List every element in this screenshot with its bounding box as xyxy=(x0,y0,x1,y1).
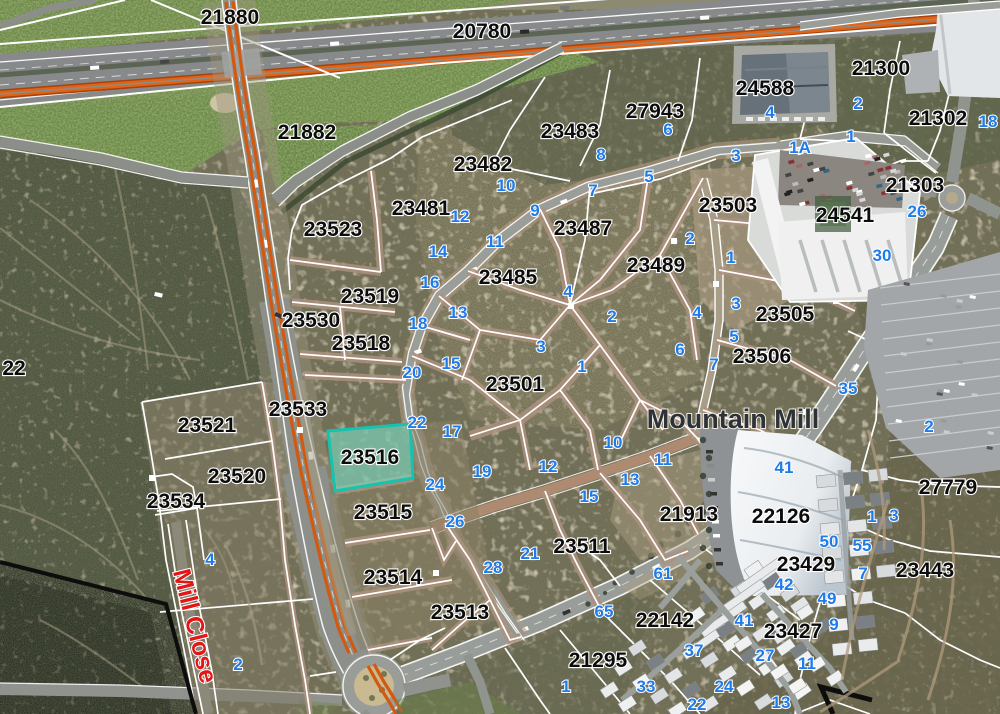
svg-text:4: 4 xyxy=(205,550,215,569)
svg-text:15: 15 xyxy=(442,354,461,373)
svg-text:28: 28 xyxy=(484,558,503,577)
svg-text:24541: 24541 xyxy=(816,204,875,227)
svg-text:21880: 21880 xyxy=(201,6,259,29)
svg-text:23513: 23513 xyxy=(431,601,489,624)
svg-text:23506: 23506 xyxy=(733,345,791,368)
svg-text:19: 19 xyxy=(473,462,492,481)
svg-text:22126: 22126 xyxy=(752,505,810,528)
svg-text:23481: 23481 xyxy=(392,197,451,220)
svg-text:22: 22 xyxy=(408,413,427,432)
svg-text:1: 1 xyxy=(561,677,570,696)
svg-text:23518: 23518 xyxy=(332,332,391,355)
svg-text:23487: 23487 xyxy=(554,217,612,240)
svg-text:12: 12 xyxy=(451,207,470,226)
svg-text:42: 42 xyxy=(775,575,794,594)
svg-text:23521: 23521 xyxy=(178,414,237,437)
svg-text:4: 4 xyxy=(563,282,573,301)
svg-text:23503: 23503 xyxy=(699,194,757,217)
svg-text:27943: 27943 xyxy=(626,100,684,123)
svg-text:16: 16 xyxy=(421,273,440,292)
svg-text:7: 7 xyxy=(709,355,718,374)
svg-text:23427: 23427 xyxy=(764,620,822,643)
svg-text:23443: 23443 xyxy=(896,559,954,582)
svg-text:6: 6 xyxy=(663,120,672,139)
svg-text:23483: 23483 xyxy=(541,120,599,143)
svg-text:3: 3 xyxy=(889,506,898,525)
svg-text:23485: 23485 xyxy=(479,266,538,289)
svg-text:22: 22 xyxy=(688,695,707,714)
svg-text:8: 8 xyxy=(596,145,605,164)
svg-text:23534: 23534 xyxy=(147,490,206,513)
svg-text:20780: 20780 xyxy=(453,20,511,43)
svg-text:4: 4 xyxy=(765,103,775,122)
svg-text:33: 33 xyxy=(637,677,656,696)
svg-text:7: 7 xyxy=(588,181,597,200)
svg-text:22142: 22142 xyxy=(636,609,694,632)
svg-text:2: 2 xyxy=(924,417,933,436)
svg-text:24: 24 xyxy=(715,677,734,696)
svg-text:23511: 23511 xyxy=(553,535,611,558)
svg-text:3: 3 xyxy=(731,294,740,313)
svg-text:18: 18 xyxy=(979,112,998,131)
svg-text:50: 50 xyxy=(820,532,839,551)
svg-text:10: 10 xyxy=(604,433,623,452)
svg-text:Mountain Mill: Mountain Mill xyxy=(647,404,819,434)
svg-text:21913: 21913 xyxy=(660,503,718,526)
svg-text:5: 5 xyxy=(729,327,738,346)
svg-text:2: 2 xyxy=(233,655,242,674)
svg-text:1A: 1A xyxy=(789,138,811,157)
svg-text:21302: 21302 xyxy=(909,107,967,130)
svg-text:5: 5 xyxy=(644,167,653,186)
svg-text:27779: 27779 xyxy=(919,476,977,499)
svg-text:9: 9 xyxy=(530,201,539,220)
svg-text:2: 2 xyxy=(685,229,694,248)
svg-text:41: 41 xyxy=(775,458,794,477)
svg-text:21882: 21882 xyxy=(278,121,336,144)
svg-text:23533: 23533 xyxy=(269,398,327,421)
svg-text:4: 4 xyxy=(692,303,702,322)
svg-text:21303: 21303 xyxy=(886,174,944,197)
svg-text:1: 1 xyxy=(726,248,735,267)
svg-text:22: 22 xyxy=(2,357,25,380)
svg-text:13: 13 xyxy=(772,693,791,712)
svg-text:23489: 23489 xyxy=(627,254,685,277)
svg-text:27: 27 xyxy=(756,646,775,665)
svg-text:30: 30 xyxy=(873,246,892,265)
svg-text:23514: 23514 xyxy=(364,566,423,589)
svg-text:23523: 23523 xyxy=(304,218,362,241)
svg-text:49: 49 xyxy=(818,589,837,608)
svg-text:11: 11 xyxy=(654,450,672,469)
svg-text:20: 20 xyxy=(403,363,422,382)
svg-text:1: 1 xyxy=(867,507,876,526)
svg-text:23515: 23515 xyxy=(354,501,413,524)
svg-text:23519: 23519 xyxy=(341,285,399,308)
svg-text:41: 41 xyxy=(735,611,754,630)
svg-text:61: 61 xyxy=(654,564,673,583)
svg-text:2: 2 xyxy=(853,94,862,113)
svg-text:18: 18 xyxy=(409,314,428,333)
svg-text:3: 3 xyxy=(536,337,545,356)
svg-text:17: 17 xyxy=(443,422,462,441)
svg-text:21300: 21300 xyxy=(852,57,910,80)
svg-text:21295: 21295 xyxy=(569,649,628,672)
svg-text:23482: 23482 xyxy=(454,153,512,176)
svg-text:23505: 23505 xyxy=(756,303,815,326)
svg-text:1: 1 xyxy=(577,357,586,376)
svg-text:10: 10 xyxy=(497,176,516,195)
svg-text:23520: 23520 xyxy=(208,465,266,488)
svg-text:23530: 23530 xyxy=(282,309,340,332)
svg-text:24: 24 xyxy=(426,475,445,494)
svg-text:21: 21 xyxy=(521,544,540,563)
svg-text:65: 65 xyxy=(595,602,614,621)
svg-text:15: 15 xyxy=(580,487,599,506)
svg-text:55: 55 xyxy=(853,536,872,555)
svg-text:13: 13 xyxy=(449,303,468,322)
svg-text:35: 35 xyxy=(839,379,858,398)
svg-text:1: 1 xyxy=(846,127,855,146)
svg-text:6: 6 xyxy=(675,340,684,359)
svg-text:12: 12 xyxy=(539,457,558,476)
svg-text:3: 3 xyxy=(731,146,740,165)
svg-text:11: 11 xyxy=(798,654,816,673)
svg-text:23516: 23516 xyxy=(341,446,399,469)
svg-text:14: 14 xyxy=(429,242,448,261)
svg-text:24588: 24588 xyxy=(736,77,795,100)
svg-text:7: 7 xyxy=(858,564,867,583)
svg-text:37: 37 xyxy=(685,641,704,660)
svg-text:13: 13 xyxy=(621,470,640,489)
svg-text:23429: 23429 xyxy=(777,553,835,576)
svg-text:9: 9 xyxy=(829,615,838,634)
svg-text:11: 11 xyxy=(486,232,504,251)
svg-text:26: 26 xyxy=(908,202,927,221)
svg-text:26: 26 xyxy=(446,512,465,531)
svg-text:23501: 23501 xyxy=(486,373,545,396)
svg-text:2: 2 xyxy=(607,307,616,326)
